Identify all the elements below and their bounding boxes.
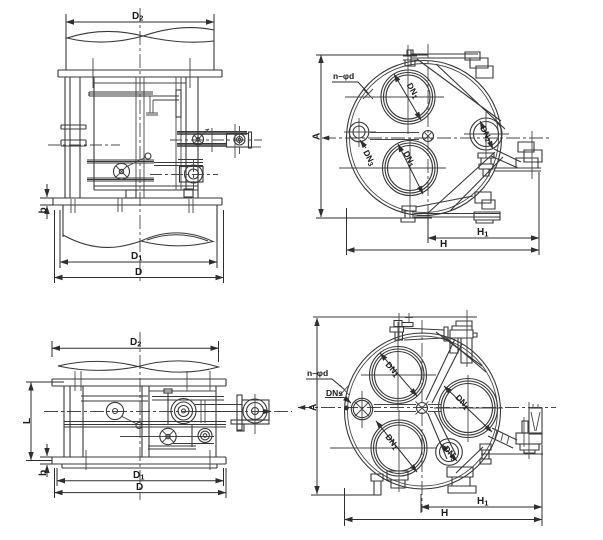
svg-text:D1: D1 [131,251,142,263]
svg-text:D2: D2 [130,337,141,349]
svg-text:b: b [38,207,49,213]
svg-text:H: H [441,508,448,519]
svg-text:b: b [38,470,49,476]
svg-text:n–φd: n–φd [307,368,328,378]
svg-text:A: A [312,133,323,140]
svg-text:n–φd: n–φd [333,71,354,81]
svg-text:D: D [135,267,142,278]
svg-text:D1: D1 [133,470,144,482]
svg-text:H: H [440,239,447,250]
svg-text:A: A [308,404,319,411]
svg-text:H1: H1 [477,227,488,239]
svg-text:H1: H1 [477,496,488,508]
svg-text:DNs: DNs [326,388,343,398]
svg-text:D: D [136,482,143,493]
svg-text:L: L [22,418,33,424]
svg-text:D2: D2 [132,11,143,23]
